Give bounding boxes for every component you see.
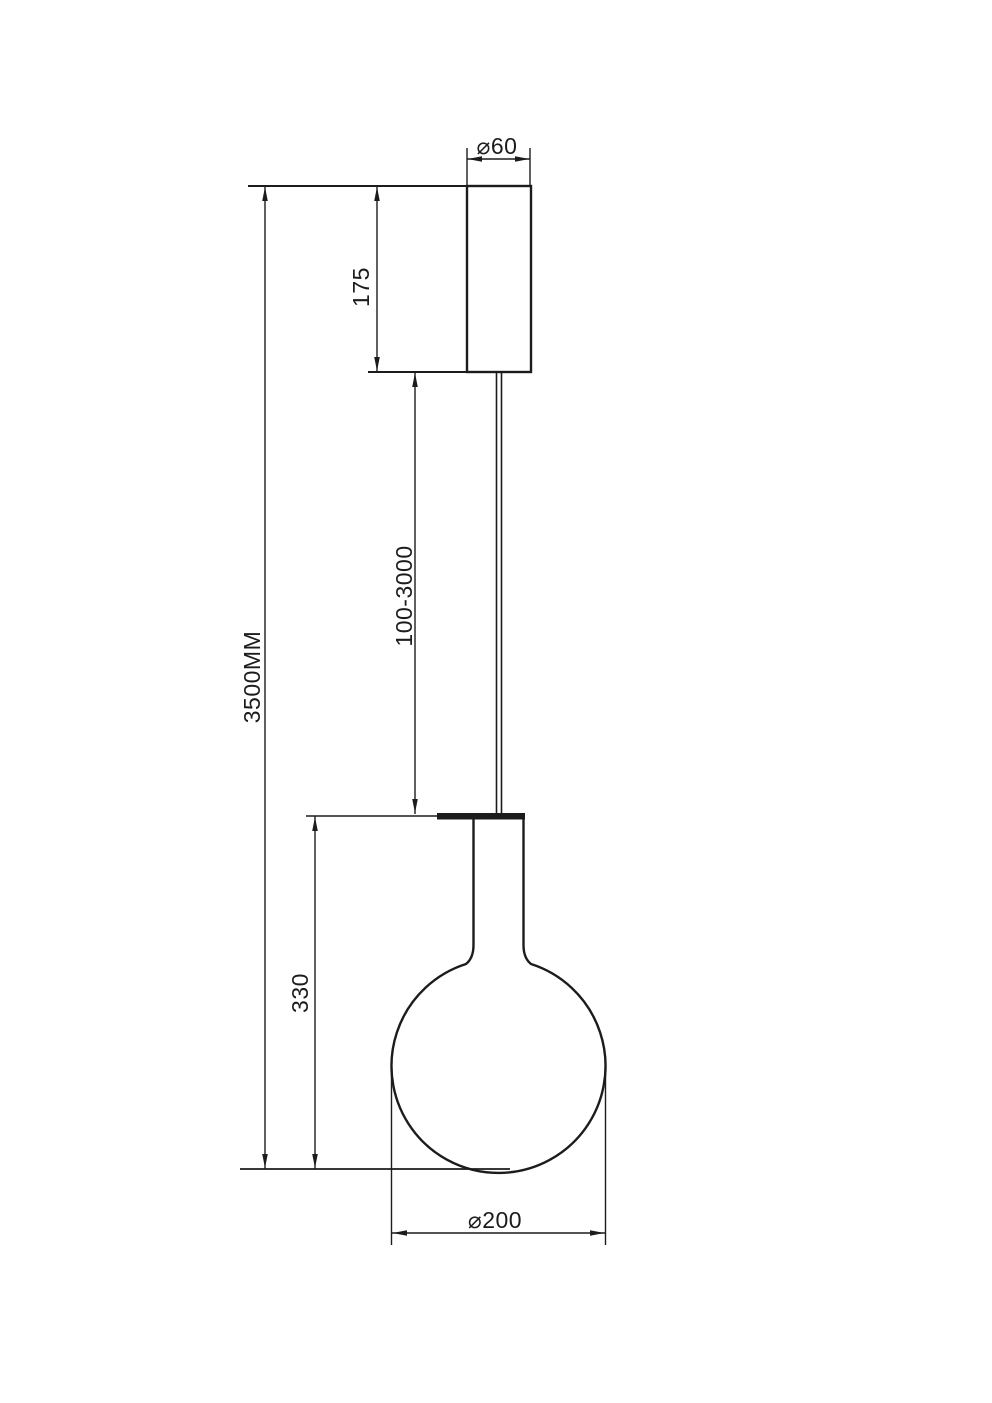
fixture-height-label: 330	[287, 973, 313, 1013]
dimension-fixture-height: 330	[287, 816, 318, 1169]
pendant-lamp-drawing: ⌀60 175 100-3000 3500MM 330	[0, 0, 992, 1403]
arrowhead-up	[412, 373, 418, 387]
arrowhead-right	[590, 1230, 605, 1236]
overall-height-label: 3500MM	[239, 631, 265, 723]
arrowhead-down	[412, 799, 418, 813]
dimension-canopy-diameter: ⌀60	[467, 133, 530, 162]
arrowhead-up	[374, 187, 380, 201]
extension-lines	[240, 148, 606, 1245]
canopy-diameter-label: ⌀60	[477, 133, 518, 159]
canopy-outline	[467, 186, 531, 372]
dimension-shade-diameter: ⌀200	[392, 1207, 606, 1236]
arrowhead-up	[262, 187, 268, 201]
technical-drawing-canvas: ⌀60 175 100-3000 3500MM 330	[0, 0, 992, 1403]
lamp-holder-cap	[437, 813, 525, 820]
dimension-suspension-length: 100-3000	[391, 372, 418, 814]
arrowhead-down	[312, 1154, 318, 1168]
arrowhead-up	[312, 817, 318, 831]
arrowhead-down	[262, 1154, 268, 1168]
bulb-flask-outline	[391, 817, 605, 1173]
canopy-height-label: 175	[348, 267, 374, 307]
arrowhead-left	[393, 1230, 408, 1236]
arrowhead-down	[374, 357, 380, 371]
shade-diameter-label: ⌀200	[468, 1207, 522, 1233]
dimension-overall-height: 3500MM	[239, 186, 268, 1169]
dimension-canopy-height: 175	[348, 186, 380, 372]
suspension-cable	[497, 372, 502, 814]
suspension-length-label: 100-3000	[391, 545, 417, 646]
